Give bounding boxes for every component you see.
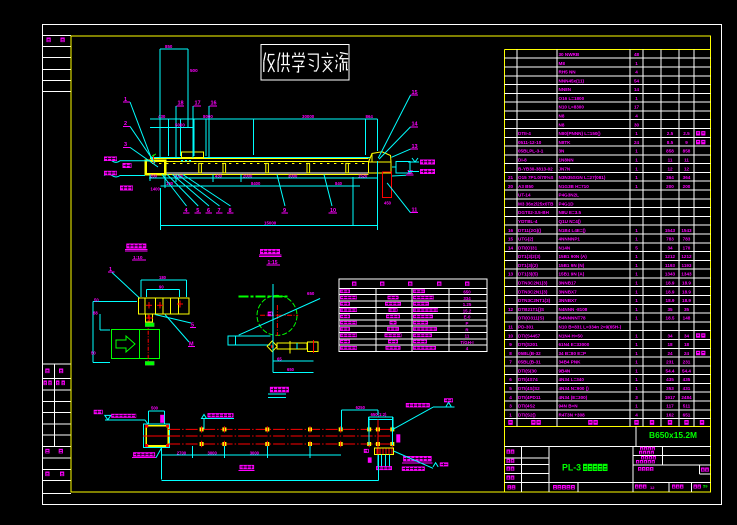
svg-text:YDTBL-4: YDTBL-4	[518, 219, 538, 224]
svg-text:180: 180	[159, 275, 167, 280]
svg-text:18: 18	[667, 342, 673, 347]
svg-text:650(1:2): 650(1:2)	[371, 412, 387, 417]
svg-text:1: 1	[635, 333, 638, 338]
svg-text:4NNNNP1: 4NNNNP1	[559, 237, 581, 242]
svg-text:61N4 E=33000: 61N4 E=33000	[559, 342, 590, 347]
svg-text:18.9: 18.9	[682, 281, 691, 286]
svg-text:1212: 1212	[681, 254, 692, 259]
svg-text:DTI(O)31: DTI(O)31	[518, 245, 538, 250]
svg-text:3N: 3N	[559, 149, 566, 154]
svg-text:05BL(B-32: 05BL(B-32	[518, 351, 541, 356]
svg-text:4: 4	[635, 70, 638, 75]
svg-text:1: 1	[509, 412, 512, 417]
svg-text:1: 1	[635, 298, 638, 303]
svg-text:4: 4	[635, 114, 638, 119]
svg-text:6: 6	[509, 377, 512, 382]
svg-text:864: 864	[366, 114, 374, 119]
svg-text:B650x15.2M: B650x15.2M	[649, 430, 697, 440]
svg-text:11: 11	[684, 158, 689, 163]
svg-text:14: 14	[508, 245, 514, 250]
svg-text:1: 1	[635, 158, 638, 163]
svg-text:162: 162	[666, 412, 674, 417]
svg-text:1: 1	[635, 316, 638, 321]
svg-text:3NNBX7: 3NNBX7	[559, 298, 578, 303]
svg-text:N1G3B H=710: N1G3B H=710	[559, 184, 590, 189]
svg-text:54.4: 54.4	[682, 368, 691, 373]
svg-text:14: 14	[634, 87, 640, 92]
svg-text:05BLPL-3-1: 05BLPL-3-1	[518, 149, 544, 154]
svg-text:35: 35	[667, 307, 673, 312]
svg-text:200: 200	[150, 173, 158, 178]
svg-text:15B1 9N (N): 15B1 9N (N)	[559, 263, 585, 268]
svg-text:DTI(S2(): DTI(S2()	[518, 412, 536, 417]
svg-text:231: 231	[666, 360, 674, 365]
svg-text:1: 1	[635, 96, 638, 101]
svg-text:200: 200	[683, 184, 691, 189]
svg-text:650: 650	[287, 367, 295, 372]
svg-text:1: 1	[635, 175, 638, 180]
svg-text:1212: 1212	[665, 254, 676, 259]
svg-text:05BL(B-31: 05BL(B-31	[518, 360, 541, 365]
svg-text:17: 17	[634, 105, 640, 110]
svg-text:DTI(S4457: DTI(S4457	[518, 333, 541, 338]
svg-text:30 NWRB: 30 NWRB	[559, 52, 580, 57]
svg-text:DTI(S(30: DTI(S(30	[518, 368, 537, 373]
svg-text:8: 8	[509, 351, 512, 356]
svg-text:DT1(3)(5): DT1(3)(5)	[518, 272, 538, 277]
svg-text:A3 B50: A3 B50	[518, 184, 534, 189]
svg-text:18.9: 18.9	[682, 298, 691, 303]
svg-text:200: 200	[666, 184, 674, 189]
svg-text:NNN45x(11): NNN45x(11)	[559, 78, 585, 83]
svg-text:B4NNNNT78: B4NNNNT78	[559, 316, 587, 321]
svg-text:650: 650	[307, 291, 315, 296]
svg-text:16: 16	[508, 228, 514, 233]
svg-text:54: 54	[634, 78, 640, 83]
svg-text:1543: 1543	[681, 228, 692, 233]
svg-text:12: 12	[667, 166, 673, 171]
svg-text:E-0: E-0	[464, 315, 471, 320]
svg-text:18: 18	[684, 342, 690, 347]
svg-text:18.9: 18.9	[666, 281, 675, 286]
svg-text:N8: N8	[559, 122, 565, 127]
svg-text:1: 1	[635, 351, 638, 356]
svg-text:15.2: 15.2	[463, 308, 472, 313]
svg-text:94N B=N: 94N B=N	[559, 404, 579, 409]
svg-text:24: 24	[634, 140, 640, 145]
svg-text:M8: M8	[559, 61, 566, 66]
svg-text:15B1 90N (A): 15B1 90N (A)	[559, 254, 588, 259]
svg-text:34: 34	[667, 245, 673, 250]
svg-text:12: 12	[508, 307, 514, 312]
svg-text:P4G1D: P4G1D	[559, 201, 575, 206]
svg-text:11: 11	[465, 334, 470, 339]
svg-text:54.4: 54.4	[666, 368, 675, 373]
svg-text:500: 500	[151, 405, 159, 410]
svg-text:1.25: 1.25	[463, 302, 472, 307]
svg-text:DT1(3)(2): DT1(3)(2)	[518, 263, 538, 268]
svg-text:15: 15	[508, 237, 514, 242]
svg-text:UTG(2): UTG(2)	[518, 237, 534, 242]
svg-text:11: 11	[508, 325, 513, 330]
svg-text:DI-8: DI-8	[518, 158, 527, 163]
svg-text:8.5: 8.5	[667, 140, 674, 145]
svg-text:48: 48	[634, 52, 640, 57]
svg-text:DTI(4PD11: DTI(4PD11	[518, 395, 541, 400]
svg-text:1193: 1193	[682, 263, 692, 268]
svg-text:4N34 (E=300): 4N34 (E=300)	[559, 395, 588, 400]
svg-text:650: 650	[463, 290, 471, 295]
svg-text:34 B=80 E=P: 34 B=80 E=P	[559, 351, 587, 356]
svg-text:DTB21T1()S: DTB21T1()S	[518, 307, 544, 312]
svg-text:B-YB30-3813-02: B-YB30-3813-02	[518, 166, 553, 171]
svg-text:4: 4	[635, 412, 638, 417]
svg-text:T/GH-I: T/GH-I	[460, 340, 473, 345]
svg-text:9B4N: 9B4N	[559, 368, 571, 373]
svg-text:148: 148	[683, 316, 691, 321]
svg-text:DTI(4S(S2: DTI(4S(S2	[518, 386, 540, 391]
svg-text:431: 431	[683, 386, 691, 391]
svg-text:DTN3C2NT1(3): DTN3C2NT1(3)	[518, 298, 551, 303]
svg-text:P: P	[466, 321, 469, 326]
svg-text:N10 L=8300: N10 L=8300	[559, 105, 585, 110]
svg-text:9: 9	[509, 342, 512, 347]
svg-text:3NNB17: 3NNB17	[559, 281, 577, 286]
svg-text:430: 430	[158, 114, 166, 119]
svg-text:90: 90	[159, 285, 164, 290]
svg-text:5: 5	[635, 245, 638, 250]
svg-text:Q1U N=4(): Q1U N=4()	[559, 219, 582, 224]
svg-text:15B1 9N (A): 15B1 9N (A)	[559, 272, 585, 277]
svg-text:DTN3C2N1(3): DTN3C2N1(3)	[518, 281, 548, 286]
svg-text:N1B4 L4E=(): N1B4 L4E=()	[559, 228, 587, 233]
svg-text:18.9: 18.9	[682, 289, 691, 294]
svg-text:N8U E=3.5: N8U E=3.5	[559, 210, 582, 215]
svg-text:13: 13	[508, 272, 514, 277]
svg-text:5000: 5000	[175, 123, 185, 128]
svg-text:850: 850	[165, 44, 173, 49]
svg-text:1: 1	[635, 386, 638, 391]
svg-text:1: 1	[635, 404, 638, 409]
svg-text:1: 1	[635, 254, 638, 259]
svg-text:DT1(3)2(3): DT1(3)2(3)	[518, 254, 541, 259]
svg-text:353: 353	[666, 386, 674, 391]
svg-text:511: 511	[683, 404, 691, 409]
svg-text:2.5: 2.5	[667, 131, 674, 136]
svg-text:34: 34	[684, 333, 690, 338]
svg-text:NN8N: NN8N	[559, 87, 572, 92]
svg-text:JN7N: JN7N	[559, 166, 571, 171]
svg-text:59: 59	[703, 484, 708, 489]
svg-text:DTII-4: DTII-4	[518, 131, 531, 136]
svg-text:18.9: 18.9	[666, 298, 675, 303]
svg-text:1: 1	[635, 166, 638, 171]
svg-text:2484: 2484	[681, 395, 692, 400]
svg-text:3: 3	[635, 395, 638, 400]
svg-text:1543: 1543	[665, 228, 676, 233]
svg-text:N8TK: N8TK	[559, 140, 572, 145]
svg-text:65: 65	[277, 356, 282, 361]
svg-text:UT-14: UT-14	[518, 193, 531, 198]
svg-text:783: 783	[666, 237, 674, 242]
svg-text:DTI(S201: DTI(S201	[518, 342, 538, 347]
svg-text:3000: 3000	[208, 450, 218, 455]
svg-text:117: 117	[666, 404, 674, 409]
svg-text:N1N4 H=50: N1N4 H=50	[559, 333, 584, 338]
svg-text:8000: 8000	[203, 114, 213, 119]
svg-text:R4T3N +308: R4T3N +308	[559, 412, 586, 417]
svg-text:1N8NN: 1N8NN	[559, 158, 575, 163]
svg-text:N8: N8	[559, 114, 565, 119]
svg-text:1193: 1193	[665, 263, 675, 268]
svg-text:50: 50	[91, 351, 96, 356]
svg-text:N10 B=831 L=334n 2=9(65H-): N10 B=831 L=334n 2=9(65H-)	[559, 325, 622, 330]
svg-text:1917: 1917	[665, 395, 676, 400]
svg-text:11: 11	[668, 158, 673, 163]
svg-text:18.5: 18.5	[666, 316, 675, 321]
svg-text:1: 1	[635, 281, 638, 286]
svg-text:3000: 3000	[288, 173, 298, 178]
svg-text:1: 1	[635, 149, 638, 154]
svg-text:DT11(2G)(): DT11(2G)()	[518, 228, 542, 233]
svg-text:N4NNN -8108: N4NNN -8108	[559, 307, 588, 312]
svg-text:231: 231	[683, 360, 691, 365]
svg-text:1: 1	[635, 272, 638, 277]
svg-text:2000: 2000	[243, 173, 253, 178]
svg-text:N14N: N14N	[559, 245, 571, 250]
svg-text:N80(PNNN) L=150(): N80(PNNN) L=150()	[559, 131, 601, 136]
svg-text:O16 L=1800: O16 L=1800	[559, 96, 585, 101]
svg-text:6250: 6250	[356, 405, 366, 410]
svg-text:4N34 L=340: 4N34 L=340	[559, 377, 585, 382]
svg-text:3NNBX7: 3NNBX7	[559, 289, 578, 294]
svg-text:5: 5	[509, 386, 512, 391]
svg-text:34: 34	[667, 333, 673, 338]
svg-text:O15 7P1.0/70%S: O15 7P1.0/70%S	[518, 175, 554, 180]
svg-text:1: 1	[635, 184, 638, 189]
svg-text:DGT02-3.5-BH: DGT02-3.5-BH	[518, 210, 550, 215]
svg-text:12: 12	[684, 166, 690, 171]
svg-text:18.9: 18.9	[666, 289, 675, 294]
svg-text:34B4 PNK: 34B4 PNK	[559, 360, 582, 365]
svg-text:651: 651	[683, 412, 691, 417]
svg-text:4N34 N=900 (): 4N34 N=900 ()	[559, 386, 590, 391]
svg-text:840: 840	[335, 181, 343, 186]
svg-text:24: 24	[684, 351, 690, 356]
svg-text:1400: 1400	[151, 186, 161, 191]
svg-text:1520: 1520	[358, 173, 368, 178]
svg-text:0511-12-10: 0511-12-10	[518, 140, 542, 145]
svg-text:1: 1	[635, 360, 638, 365]
svg-text:1: 1	[635, 368, 638, 373]
svg-text:20: 20	[508, 184, 514, 189]
svg-text:858: 858	[666, 149, 674, 154]
svg-text:P4G3N2L: P4G3N2L	[559, 193, 580, 198]
svg-text:7: 7	[509, 360, 512, 365]
svg-text:2700: 2700	[177, 450, 187, 455]
svg-text:1: 1	[635, 228, 638, 233]
svg-text:15000: 15000	[264, 221, 277, 226]
svg-text:1: 1	[635, 342, 638, 347]
svg-text:170: 170	[683, 245, 691, 250]
svg-text:1: 1	[635, 377, 638, 382]
svg-text:1343: 1343	[665, 272, 676, 277]
svg-text:364: 364	[683, 175, 691, 180]
svg-text:1: 1	[635, 237, 638, 242]
svg-text:10: 10	[508, 333, 514, 338]
svg-text:1: 1	[635, 263, 638, 268]
svg-text:RH5 NN: RH5 NN	[559, 70, 577, 75]
svg-text:21: 21	[508, 175, 514, 180]
svg-text:783: 783	[683, 237, 691, 242]
svg-text:858: 858	[683, 149, 691, 154]
svg-text:M3 36x2/25x0TB: M3 36x2/25x0TB	[518, 201, 554, 206]
svg-text:12: 12	[650, 485, 655, 490]
svg-text:8400: 8400	[251, 181, 261, 186]
svg-text:1: 1	[635, 61, 638, 66]
svg-text:PD-301: PD-301	[518, 325, 534, 330]
svg-text:364: 364	[666, 175, 674, 180]
svg-text:50: 50	[94, 298, 99, 303]
svg-text:24: 24	[667, 351, 673, 356]
svg-text:500: 500	[190, 68, 198, 73]
svg-text:N3N35SGN L=27(081): N3N35SGN L=27(081)	[559, 175, 606, 180]
svg-text:DTN3C2N1(3): DTN3C2N1(3)	[518, 289, 548, 294]
svg-text:435: 435	[666, 377, 674, 382]
svg-text:88: 88	[93, 311, 98, 316]
svg-text:4: 4	[509, 395, 512, 400]
svg-text:435: 435	[683, 377, 691, 382]
svg-text:3: 3	[509, 404, 512, 409]
svg-text:DTI(O311(S): DTI(O311(S)	[518, 316, 545, 321]
svg-text:334: 334	[463, 296, 471, 301]
svg-text:30: 30	[634, 122, 640, 127]
svg-text:9: 9	[685, 140, 688, 145]
svg-text:DTI(4S2: DTI(4S2	[518, 404, 536, 409]
svg-text:1: 1	[635, 307, 638, 312]
svg-text:1343: 1343	[681, 272, 692, 277]
svg-text:DTI(4S74: DTI(4S74	[518, 377, 538, 382]
svg-text:35: 35	[684, 307, 690, 312]
svg-text:1: 1	[635, 289, 638, 294]
svg-text:450: 450	[384, 200, 392, 205]
svg-text:430: 430	[215, 173, 223, 178]
svg-text:30000: 30000	[302, 114, 315, 119]
svg-text:PL-3: PL-3	[562, 463, 581, 473]
svg-text:1: 1	[635, 131, 638, 136]
svg-text:3000: 3000	[250, 450, 260, 455]
svg-text:2.5: 2.5	[683, 131, 690, 136]
